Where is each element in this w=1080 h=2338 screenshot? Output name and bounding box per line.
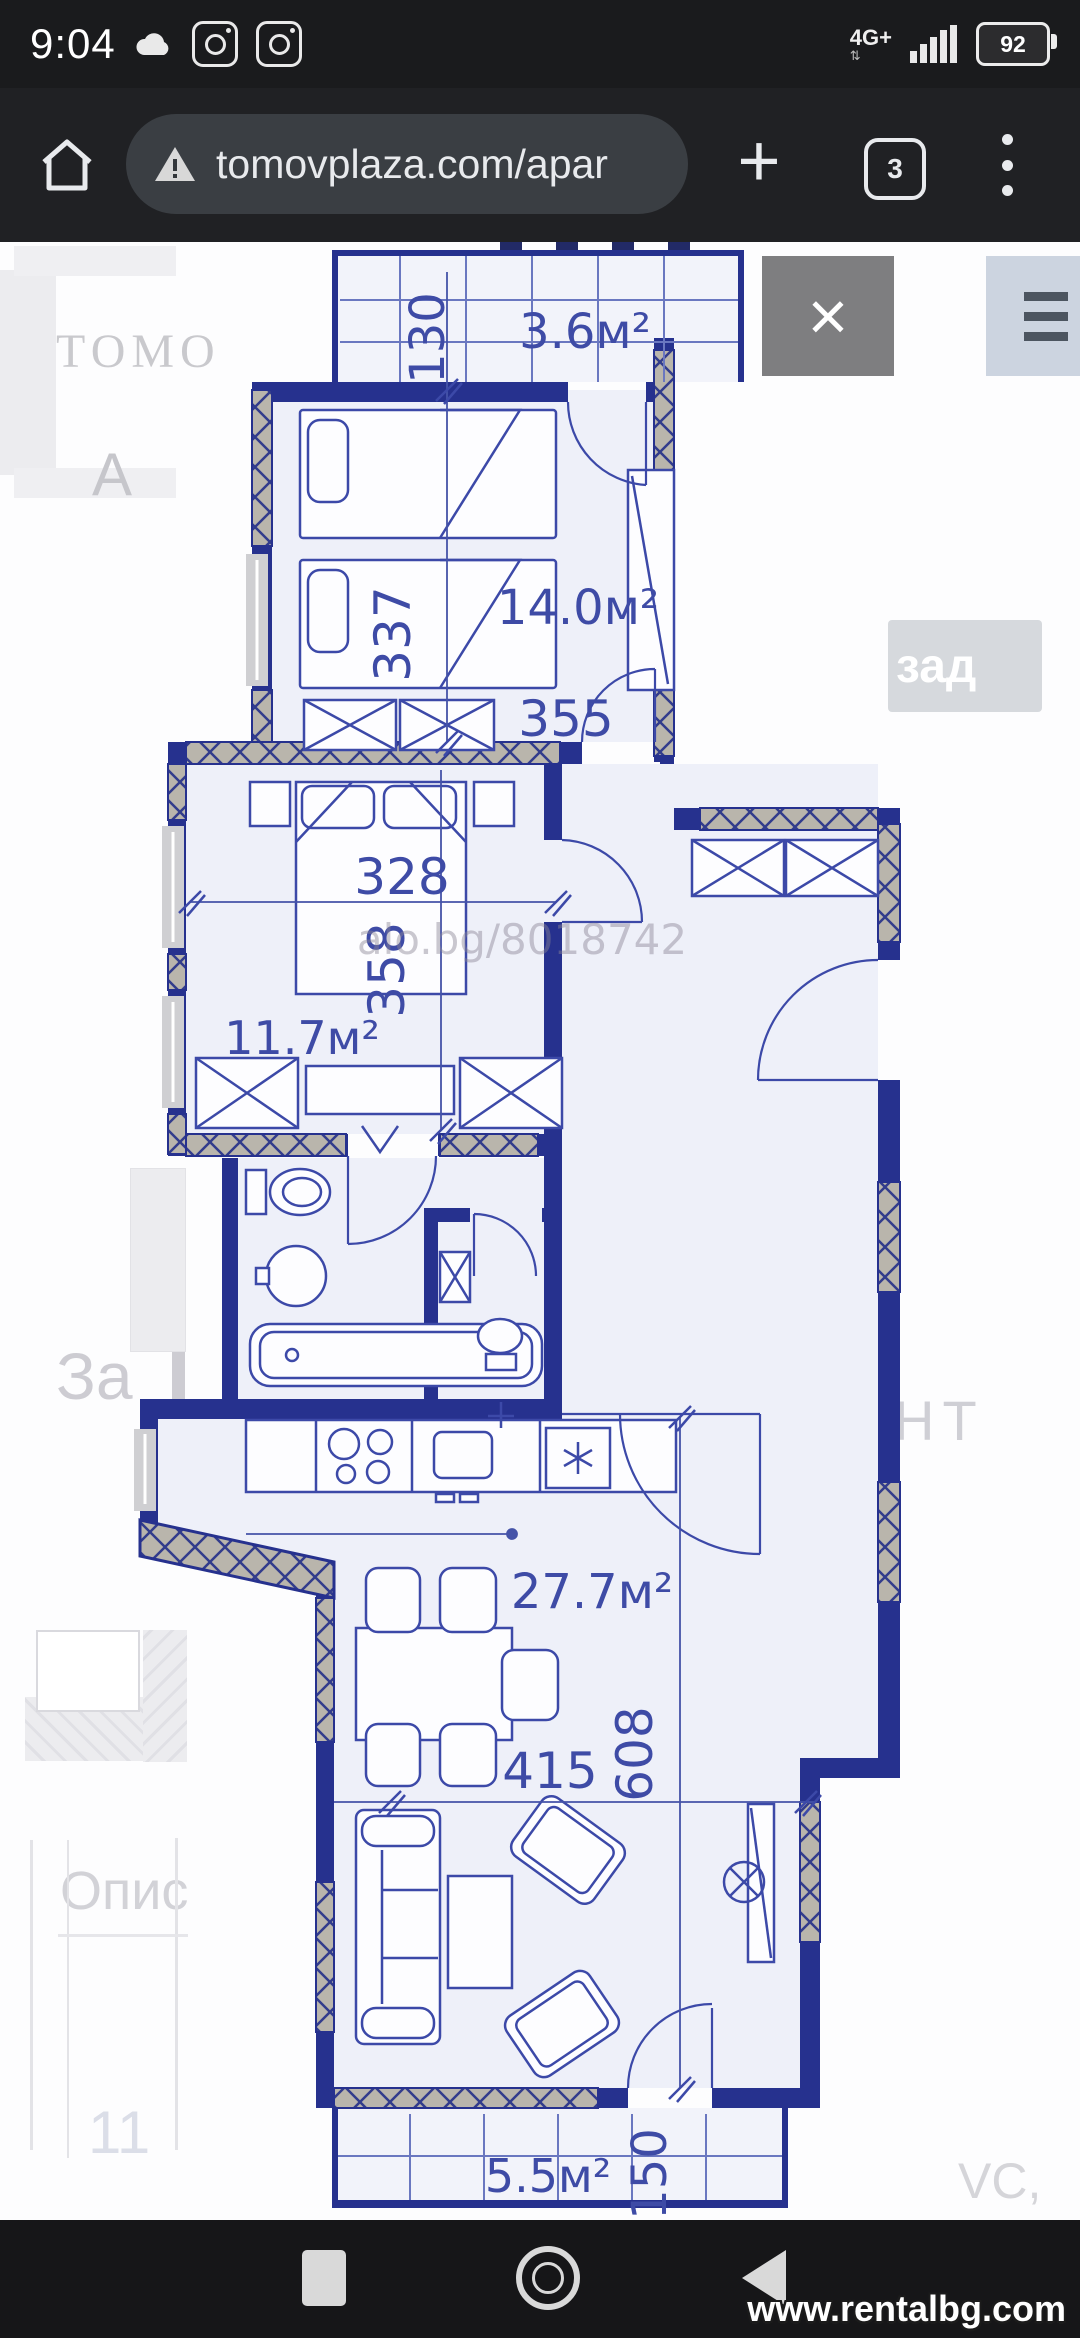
instagram-icon-2 — [256, 21, 302, 67]
tab-switcher-button[interactable]: 3 — [864, 138, 926, 200]
phone-screen: 9:04 4G+⇅ 92 — [0, 0, 1080, 2338]
page-content: ТОМО А С За Опис 11 НТ VC, — [0, 242, 1080, 2220]
label-bedroom-large-area: 14.0м² — [497, 580, 659, 636]
label-balcony-top-width: 130 — [400, 292, 456, 384]
security-warning-icon — [154, 145, 196, 183]
label-living-width: 415 — [502, 1742, 597, 1800]
home-button[interactable] — [36, 134, 98, 196]
signal-bars-icon — [910, 25, 958, 63]
instagram-icon — [192, 21, 238, 67]
new-tab-button[interactable]: + — [726, 132, 792, 198]
url-bar[interactable]: tomovplaza.com/apar — [126, 114, 688, 214]
status-left: 9:04 — [30, 20, 302, 68]
label-living-depth: 608 — [606, 1706, 664, 1801]
network-type-label: 4G+⇅ — [850, 27, 892, 62]
hamburger-icon — [1024, 292, 1068, 301]
back-button[interactable]: зад — [888, 620, 1042, 712]
browser-toolbar: tomovplaza.com/apar + 3 — [0, 88, 1080, 242]
recents-button[interactable] — [302, 2250, 346, 2306]
label-bedroom-small-area: 11.7м² — [224, 1011, 380, 1065]
close-button[interactable]: × — [762, 256, 894, 376]
site-watermark: www.rentalbg.com — [747, 2288, 1066, 2330]
status-right: 4G+⇅ 92 — [850, 22, 1050, 66]
cloud-icon — [134, 29, 174, 59]
android-nav-bar: www.rentalbg.com — [0, 2220, 1080, 2338]
battery-icon: 92 — [976, 22, 1050, 66]
label-living-area: 27.7м² — [511, 1564, 673, 1620]
home-nav-button[interactable] — [516, 2246, 580, 2310]
floor-plan: 3.6м² 130 337 14.0м² 355 328 358 11.7м² … — [0, 242, 1080, 2220]
status-bar: 9:04 4G+⇅ 92 — [0, 0, 1080, 88]
close-icon: × — [808, 276, 849, 356]
label-bedroom-large-width: 355 — [518, 690, 613, 748]
clock: 9:04 — [30, 20, 116, 68]
hamburger-menu-button[interactable] — [986, 256, 1080, 376]
url-text: tomovplaza.com/apar — [216, 141, 608, 188]
label-bedroom-small-width: 328 — [354, 848, 449, 906]
label-balcony-bottom-area: 5.5м² — [485, 2149, 611, 2203]
plan-watermark: alo.bg/8018742 — [357, 915, 687, 964]
label-balcony-top-area: 3.6м² — [519, 304, 651, 360]
menu-kebab-button[interactable] — [1002, 134, 1014, 196]
label-balcony-bottom-width: 150 — [622, 2128, 678, 2220]
label-bedroom-large-depth: 337 — [364, 586, 422, 681]
